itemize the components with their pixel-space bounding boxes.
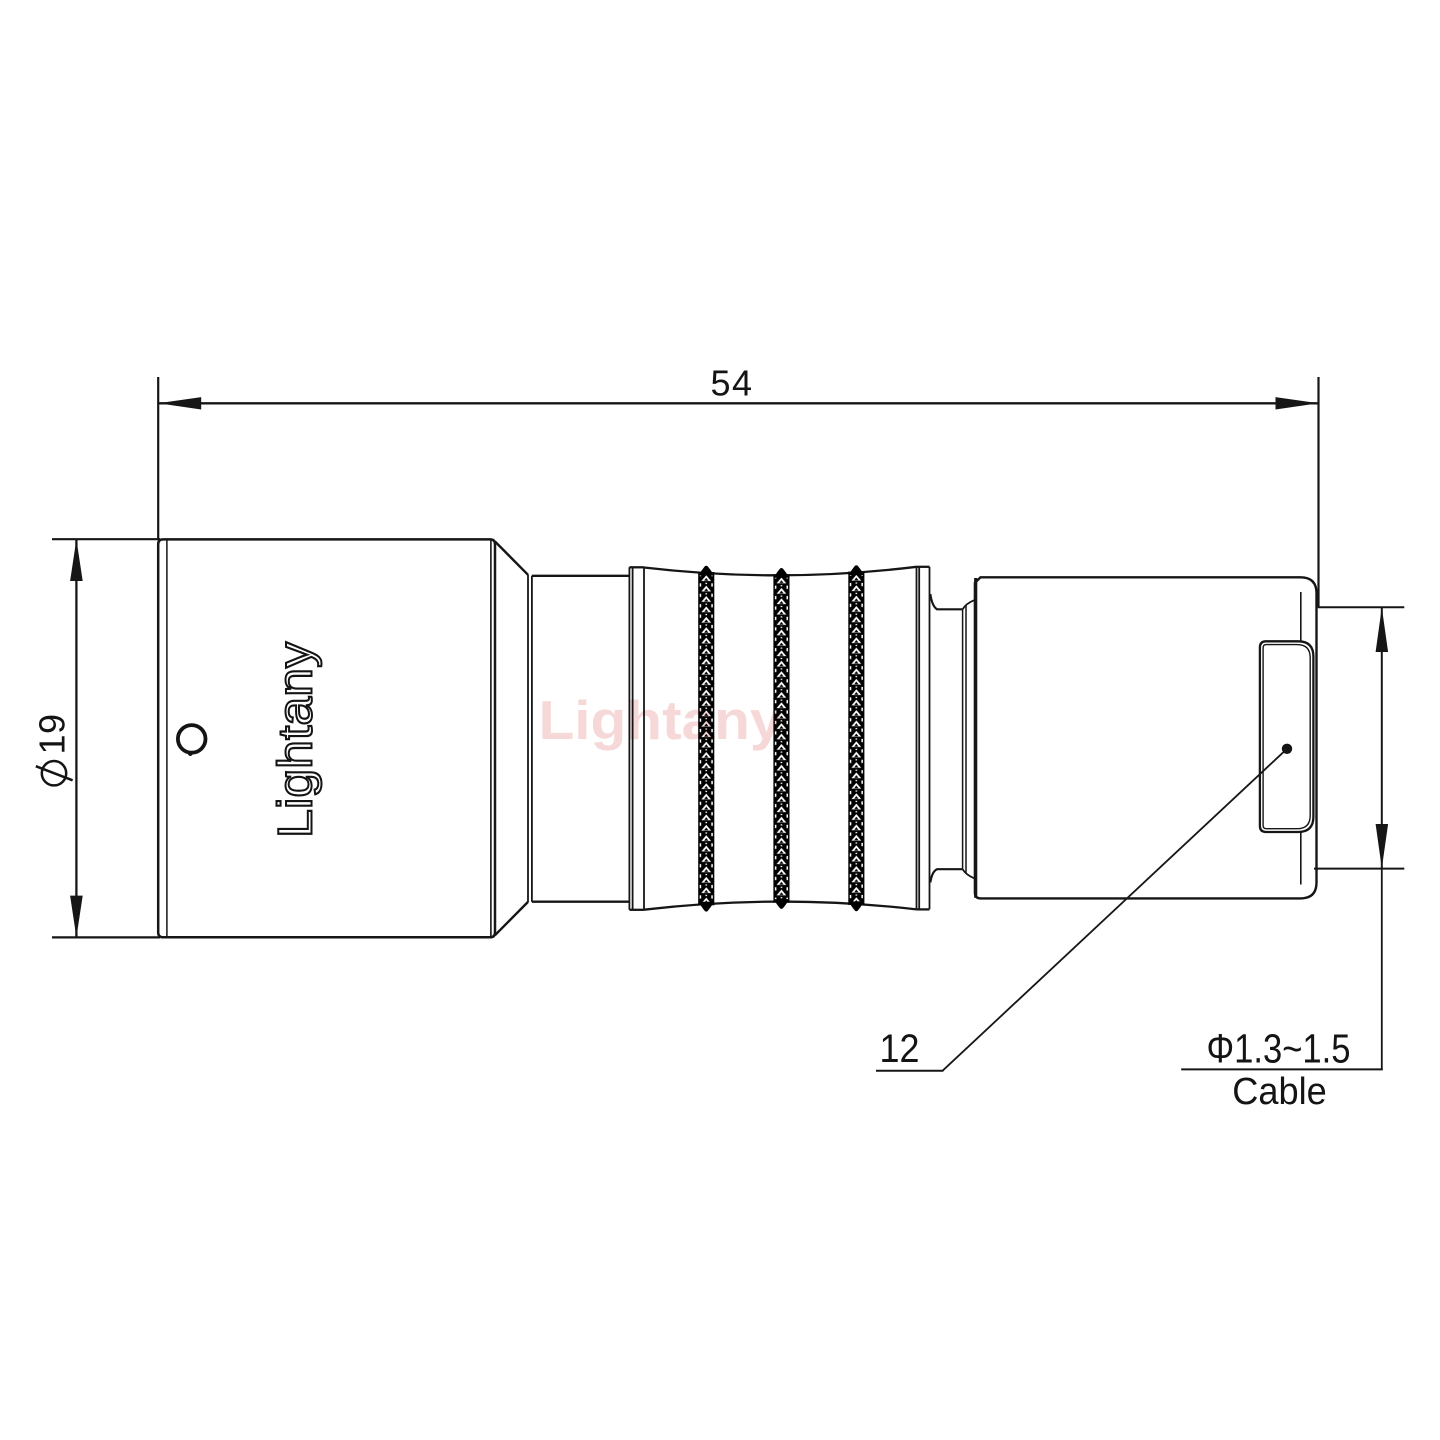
svg-text:12: 12 [880,1027,920,1071]
svg-text:Lightany: Lightany [539,689,783,751]
svg-text:Φ1.3~1.5: Φ1.3~1.5 [1207,1026,1351,1072]
svg-text:Cable: Cable [1232,1071,1327,1113]
svg-text:19: 19 [32,713,73,754]
svg-text:Lightany: Lightany [270,642,323,838]
svg-text:54: 54 [711,363,754,404]
